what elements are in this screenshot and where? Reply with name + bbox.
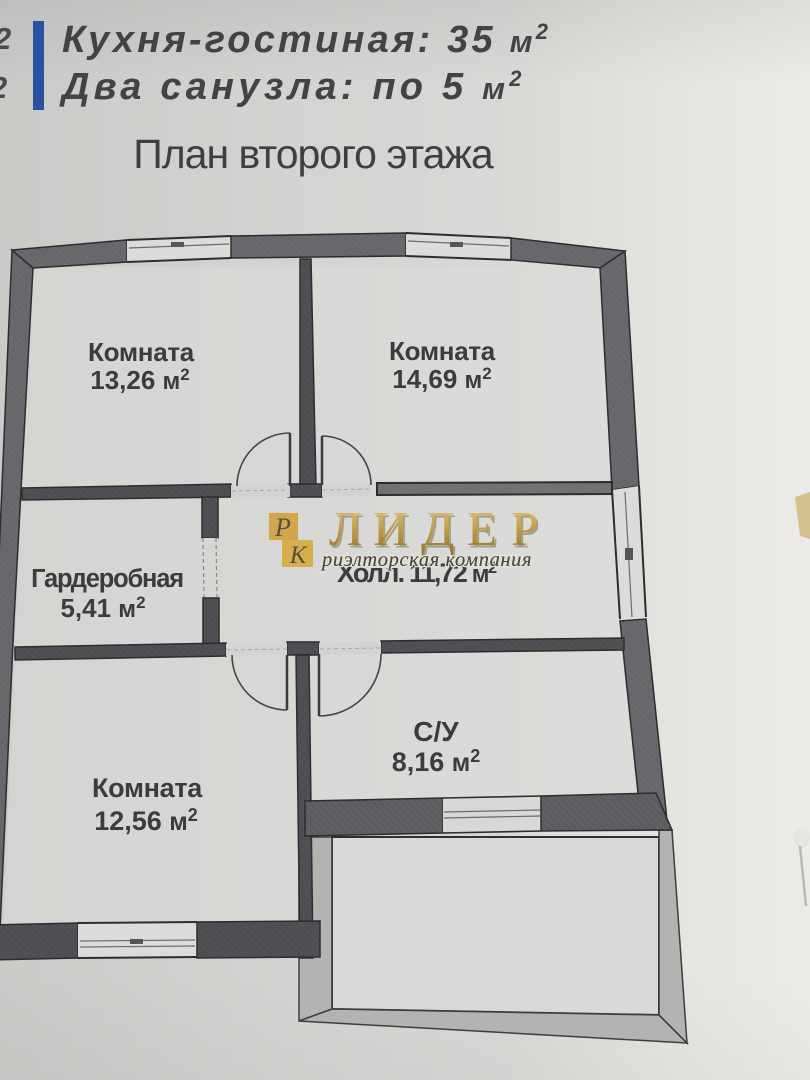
svg-text:Два санузла: по 5 м2: Два санузла: по 5 м2	[59, 66, 526, 108]
svg-text:риэлторская компания: риэлторская компания	[320, 549, 532, 571]
svg-text:К: К	[289, 542, 308, 569]
svg-text:План второго этажа: План второго этажа	[133, 131, 494, 177]
svg-text:2: 2	[0, 70, 7, 105]
svg-text:Гардеробная: Гардеробная	[31, 565, 183, 593]
svg-text:Комната: Комната	[389, 336, 496, 366]
svg-text:Комната: Комната	[88, 337, 195, 367]
svg-text:13,26 м2: 13,26 м2	[90, 365, 190, 395]
svg-text:14,69 м2: 14,69 м2	[392, 364, 492, 394]
svg-text:Кухня-гостиная: 35 м2: Кухня-гостиная: 35 м2	[62, 19, 551, 61]
svg-text:12,56 м2: 12,56 м2	[94, 805, 198, 836]
svg-text:8,16 м2: 8,16 м2	[392, 746, 481, 777]
svg-text:С/У: С/У	[413, 716, 459, 747]
svg-text:Комната: Комната	[92, 773, 203, 803]
svg-text:5,41 м2: 5,41 м2	[60, 593, 145, 623]
svg-text:Р: Р	[274, 513, 291, 542]
svg-text:2: 2	[0, 21, 11, 56]
